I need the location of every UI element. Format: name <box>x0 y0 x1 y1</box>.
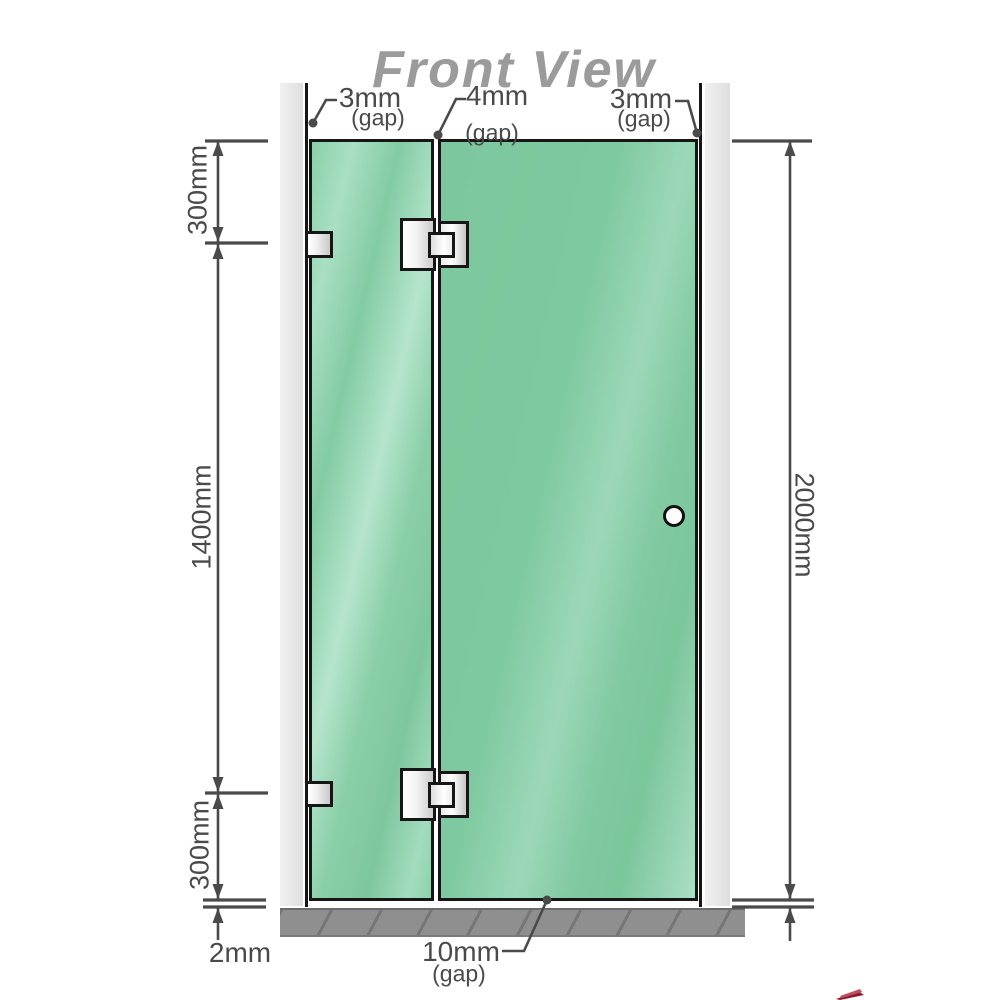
gap-label-middle: 4mm <box>466 82 528 110</box>
hinge-top <box>400 218 469 271</box>
door-glass-panel <box>438 139 698 901</box>
dim-label-300-bottom: 300mm <box>187 800 214 890</box>
watermark-mark <box>836 989 864 1000</box>
left-wall-channel <box>280 83 303 906</box>
right-wall-channel <box>705 83 730 906</box>
right-wall-line <box>699 83 702 907</box>
floor-base <box>280 908 745 937</box>
wall-bracket-bottom <box>305 781 333 807</box>
hinge-knuckle <box>428 782 455 808</box>
dim-label-1400: 1400mm <box>189 464 216 569</box>
gap-unit-top-left: (gap) <box>351 107 405 130</box>
front-view-diagram: Front View <box>0 0 1000 1000</box>
gap-unit-top-right: (gap) <box>617 108 671 131</box>
gap-unit-bottom: (gap) <box>432 963 486 986</box>
gap-unit-middle: (gap) <box>465 122 519 145</box>
hinge-bottom <box>400 768 469 821</box>
door-handle <box>663 505 685 527</box>
dim-label-2mm: 2mm <box>209 939 271 967</box>
dim-label-300-top: 300mm <box>185 145 212 235</box>
wall-bracket-top <box>305 231 333 258</box>
dim-label-2000: 2000mm <box>791 472 818 577</box>
hinge-knuckle <box>428 232 455 258</box>
